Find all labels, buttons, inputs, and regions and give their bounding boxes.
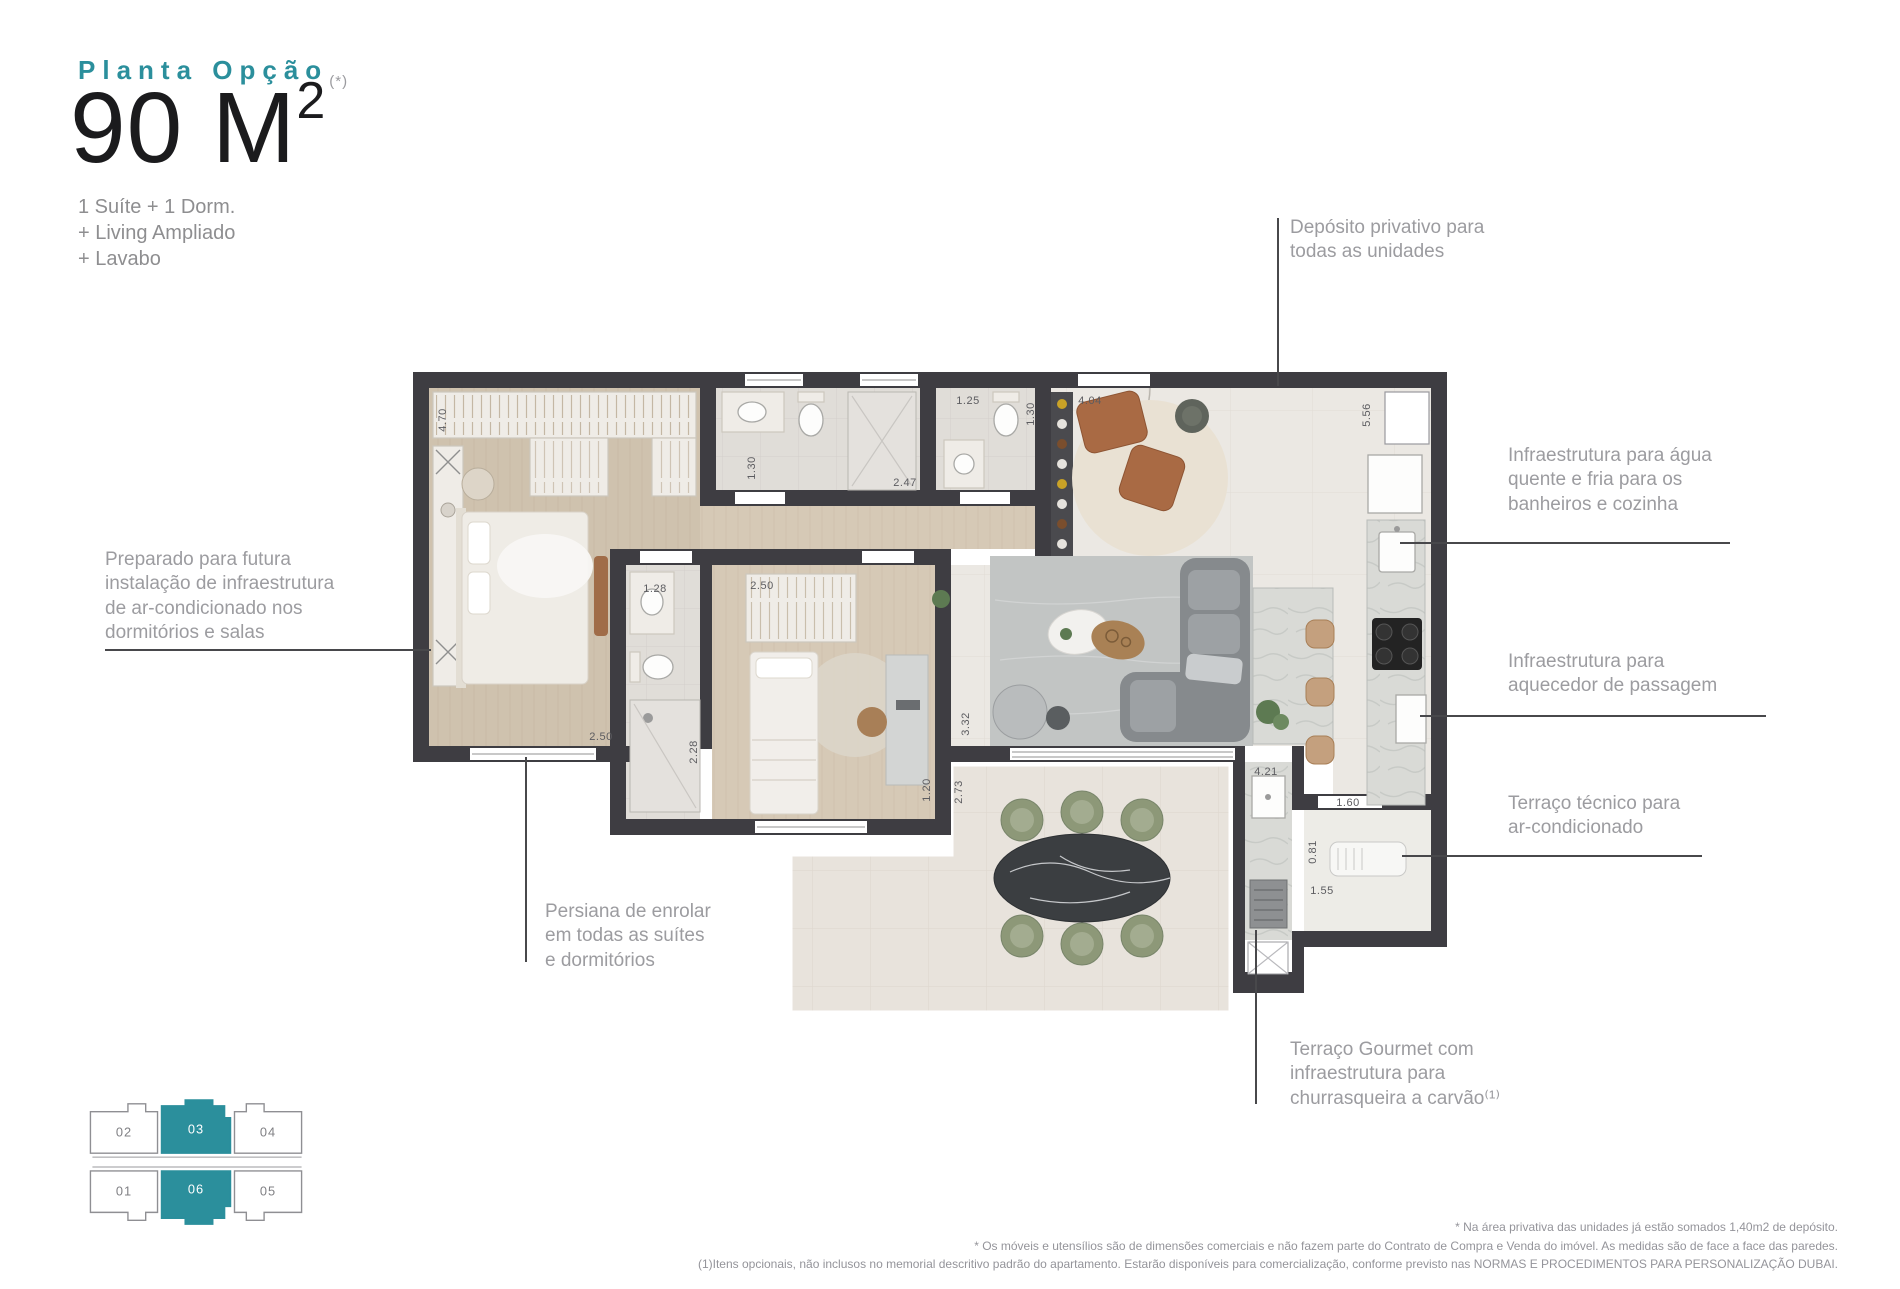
refrigerator	[1368, 455, 1422, 513]
terrace	[994, 791, 1170, 965]
dim-label: 3.32	[960, 712, 972, 735]
side-table	[1046, 706, 1070, 730]
toilet-tank	[798, 392, 824, 402]
toilet-tank	[630, 652, 640, 682]
dim-label: 1.55	[1310, 885, 1333, 897]
keyplan-unit-label: 05	[260, 1184, 276, 1199]
keyplan-unit-06	[161, 1171, 230, 1224]
dining-table	[994, 834, 1170, 922]
kitchen-sink	[1379, 532, 1415, 572]
lavabo-door-opening	[960, 492, 1010, 504]
dim-label: 5.56	[1361, 403, 1373, 426]
sofa-cushion	[1130, 680, 1176, 732]
sofa-cushion	[1188, 570, 1240, 610]
kitchen	[1367, 455, 1426, 805]
desk-chair	[857, 707, 887, 737]
pillow	[468, 522, 490, 564]
desk	[886, 655, 928, 785]
toilet	[994, 404, 1018, 436]
footnotes: * Na área privativa das unidades já estã…	[438, 1218, 1838, 1274]
vanity-chair	[462, 468, 494, 500]
toilet	[643, 655, 673, 679]
keyplan-unit-label: 06	[188, 1182, 204, 1197]
dim-label: 0.81	[1307, 840, 1319, 863]
sofa-cushion	[1188, 614, 1240, 654]
dim-label: 1.30	[1025, 402, 1037, 425]
dim-label: 2.50	[589, 731, 612, 743]
suite-door-opening	[640, 551, 692, 563]
private-deposit-closet	[1385, 392, 1429, 444]
suite-window	[470, 748, 596, 760]
shelf-items	[1057, 399, 1067, 569]
technical-terrace	[1330, 842, 1406, 876]
keyplan-unit-label: 03	[188, 1121, 204, 1136]
annotation-ac-prep: Preparado para futura instalação de infr…	[105, 548, 334, 645]
dim-label: 1.25	[956, 395, 979, 407]
bed-throw	[497, 534, 593, 598]
bar-stool	[1306, 620, 1334, 648]
bed-bench	[594, 556, 608, 636]
monitor	[896, 700, 920, 710]
faucet	[1394, 526, 1400, 532]
toilet	[799, 404, 823, 436]
dim-label: 1.60	[1336, 797, 1359, 809]
pillow	[468, 572, 490, 614]
building-key-plan: 02 03 04 01 06 05	[78, 1092, 316, 1240]
window	[860, 374, 918, 386]
water-heater	[1396, 695, 1426, 743]
toilet-tank	[993, 392, 1019, 402]
annotation-terraco-gourmet: Terraço Gourmet com infraestrutura para …	[1290, 1038, 1500, 1111]
keyplan-unit-label: 01	[116, 1184, 132, 1199]
bedroom-door-opening	[862, 551, 914, 563]
bathroom-door-opening	[735, 492, 785, 504]
terrace-sliding-door	[1010, 748, 1235, 760]
dim-label: 4.70	[437, 408, 449, 431]
page-root: Planta Opção 90 M2(*) 1 Suíte + 1 Dorm. …	[0, 0, 1900, 1289]
dim-label: 4.04	[1078, 395, 1101, 407]
sink	[954, 454, 974, 474]
dim-label: 4.21	[1254, 766, 1277, 778]
bedroom-window	[755, 821, 867, 833]
keyplan-unit-label: 02	[116, 1124, 132, 1139]
keyplan-corridor	[92, 1157, 301, 1167]
dim-label: 1.30	[746, 456, 758, 479]
bar-stool	[1306, 678, 1334, 706]
dim-label: 2.28	[688, 740, 700, 763]
dim-label: 2.73	[953, 780, 965, 803]
entry-door-opening	[1078, 374, 1150, 386]
annotation-agua: Infraestrutura para água quente e fria p…	[1508, 444, 1712, 517]
plant	[932, 590, 950, 608]
annotation-terraco-tecnico: Terraço técnico para ar-condicionado	[1508, 792, 1680, 841]
dim-label: 1.20	[921, 778, 933, 801]
dim-label: 1.28	[643, 583, 666, 595]
sink	[738, 402, 766, 422]
charcoal-grill	[1250, 880, 1287, 928]
dim-label: 2.47	[893, 477, 916, 489]
bar-stool	[1306, 736, 1334, 764]
dim-label: 2.50	[750, 580, 773, 592]
pillow	[756, 658, 812, 678]
basin	[441, 503, 455, 517]
annotation-aquecedor: Infraestrutura para aquecedor de passage…	[1508, 650, 1717, 699]
plant	[1060, 628, 1072, 640]
window	[745, 374, 803, 386]
annotation-deposito: Depósito privativo para todas as unidade…	[1290, 216, 1484, 265]
keyplan-unit-label: 04	[260, 1124, 276, 1139]
armchair	[993, 685, 1047, 739]
hall-floor	[700, 506, 1035, 549]
annotation-persiana: Persiana de enrolar em todas as suítes e…	[545, 900, 711, 973]
ac-unit	[1330, 842, 1406, 876]
